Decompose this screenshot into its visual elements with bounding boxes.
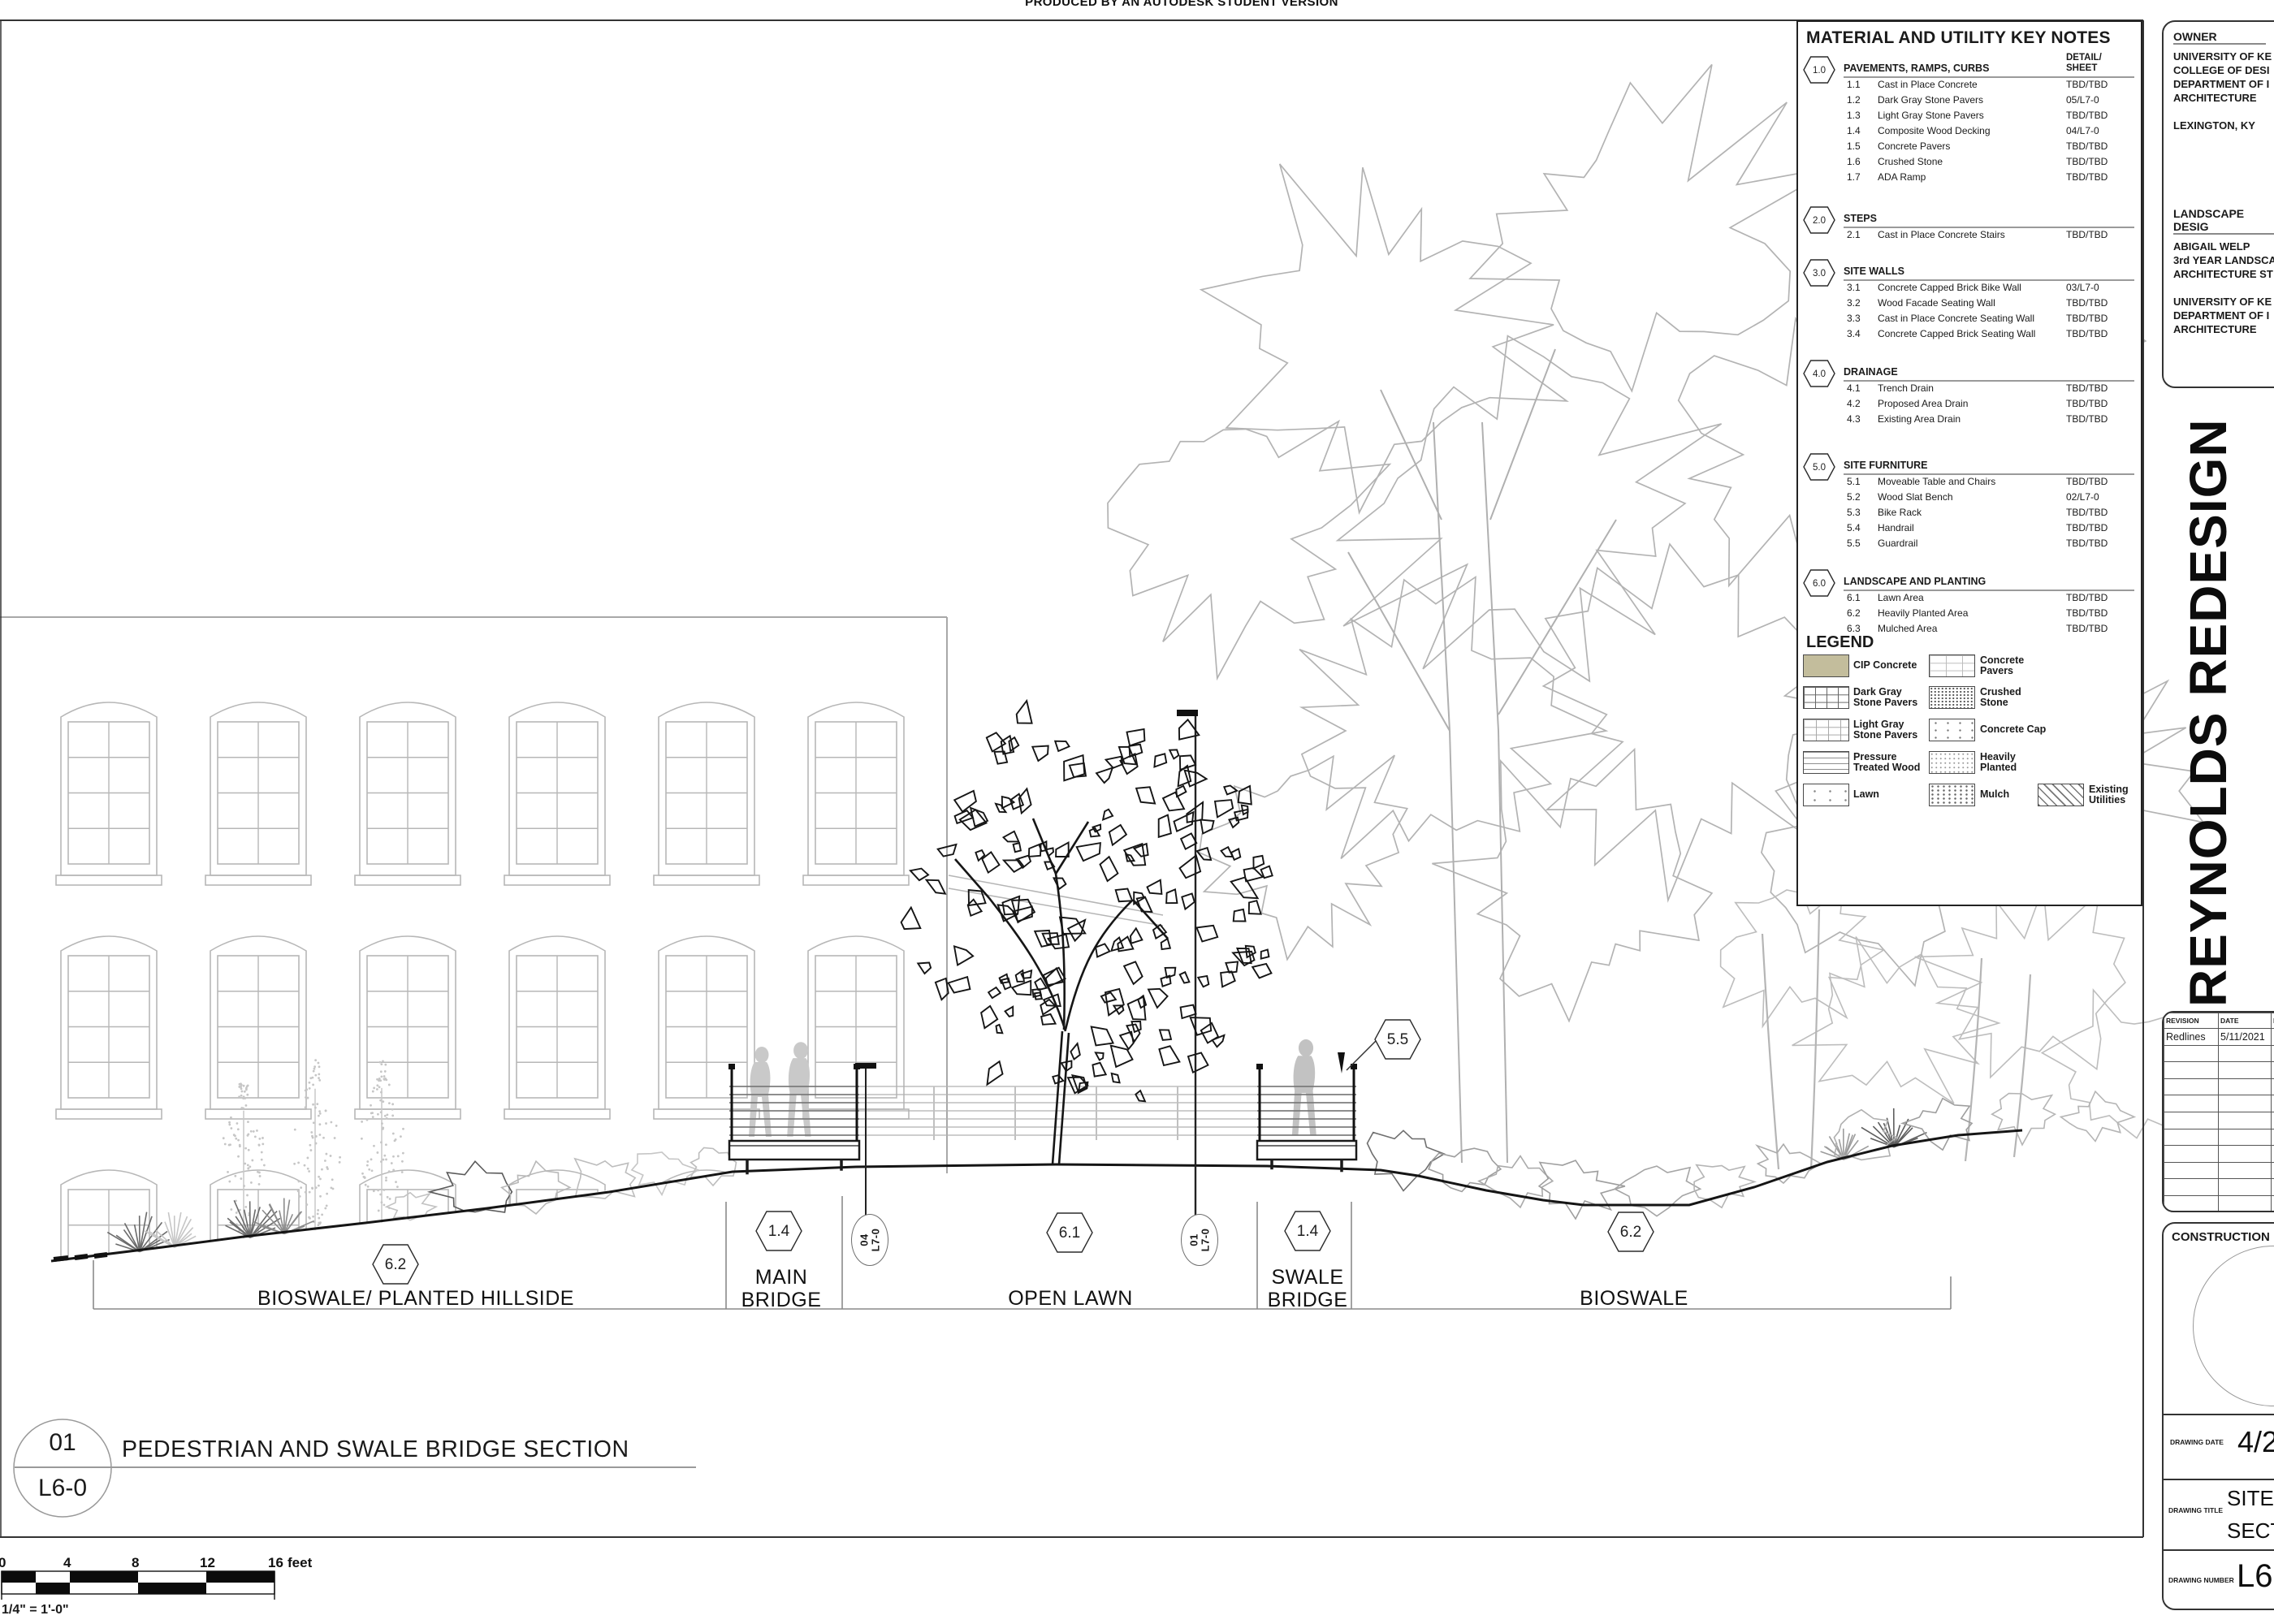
zone-label-line: BIOSWALE <box>1580 1288 1688 1311</box>
key-note-number: 2.1 <box>1847 227 1878 243</box>
revision-empty-cell <box>2272 1146 2274 1163</box>
revision-empty-cell <box>2164 1146 2219 1163</box>
svg-text:1.4: 1.4 <box>768 1223 790 1240</box>
drawing-sheet: PRODUCED BY AN AUTODESK STUDENT VERSION … <box>0 0 2274 1624</box>
drawing-title-value: SITE SECT <box>2227 1482 2274 1547</box>
key-note-detail: TBD/TBD <box>2066 520 2108 536</box>
key-note-row: 5.2Wood Slat Bench02/L7-0 <box>1798 490 2141 505</box>
key-note-label: Wood Slat Bench <box>1878 491 1953 503</box>
section-name: DRAINAGE <box>1844 366 1898 378</box>
revision-table: REVISIONDATEDESRedlines5/11/2021Ra <box>2162 1011 2274 1212</box>
key-note-row: 1.5Concrete PaversTBD/TBD <box>1798 139 2141 154</box>
viewport-sheet: L6-0 <box>12 1475 113 1502</box>
revision-empty-cell <box>2219 1146 2272 1163</box>
key-note-detail: TBD/TBD <box>2066 621 2108 637</box>
key-note-label: Dark Gray Stone Pavers <box>1878 94 1983 106</box>
zone-label-line: BRIDGE <box>741 1289 822 1312</box>
key-notes-section: 4.0DRAINAGE4.1Trench DrainTBD/TBD4.2Prop… <box>1798 363 2141 427</box>
revision-empty-cell <box>2164 1045 2219 1062</box>
svg-text:6.0: 6.0 <box>1813 579 1826 589</box>
detail-callout-sheet: L7-0 <box>1200 1229 1211 1252</box>
keynote-marker-hexagon: 1.4 <box>755 1211 802 1251</box>
key-note-row: 1.2Dark Gray Stone Pavers05/L7-0 <box>1798 93 2141 108</box>
key-notes-section-header: 4.0DRAINAGE <box>1798 363 2141 381</box>
viewport-number: 01 <box>12 1429 113 1457</box>
project-title-vertical: REYNOLDS REDESIGN <box>2178 438 2243 1007</box>
key-note-detail: TBD/TBD <box>2066 474 2108 490</box>
drawing-date-value: 4/2 <box>2237 1425 2274 1459</box>
keynote-marker-hexagon: 5.5 <box>1374 1019 1421 1060</box>
revision-cell: Ra <box>2272 1029 2274 1046</box>
key-notes-section: 3.0SITE WALLS3.1Concrete Capped Brick Bi… <box>1798 262 2141 342</box>
key-note-label: Cast in Place Concrete Stairs <box>1878 229 2005 240</box>
key-notes-section-header: 5.0SITE FURNITURE <box>1798 456 2141 474</box>
key-note-row: 4.3Existing Area DrainTBD/TBD <box>1798 412 2141 427</box>
revision-empty-cell <box>2219 1095 2272 1112</box>
key-note-row: 1.6Crushed StoneTBD/TBD <box>1798 154 2141 170</box>
svg-text:12: 12 <box>200 1555 215 1570</box>
revision-empty-cell <box>2219 1129 2272 1146</box>
key-note-detail: TBD/TBD <box>2066 170 2108 185</box>
designer-line: ABIGAIL WELP <box>2173 240 2274 253</box>
key-note-row: 3.4Concrete Capped Brick Seating WallTBD… <box>1798 326 2141 342</box>
key-note-detail: TBD/TBD <box>2066 296 2108 311</box>
key-note-detail: 02/L7-0 <box>2066 490 2099 505</box>
key-note-label: Handrail <box>1878 522 1914 533</box>
revision-empty-cell <box>2272 1112 2274 1129</box>
legend-label: Pressure Treated Wood <box>1853 750 1925 775</box>
key-note-label: Concrete Pavers <box>1878 140 1950 152</box>
key-note-number: 5.2 <box>1847 490 1878 505</box>
key-notes-section: 1.0PAVEMENTS, RAMPS, CURBS1.1Cast in Pla… <box>1798 59 2141 185</box>
svg-text:6.2: 6.2 <box>1620 1224 1641 1241</box>
revision-header-cell: DES <box>2272 1013 2274 1029</box>
revision-empty-row <box>2164 1195 2274 1212</box>
key-note-row: 6.2Heavily Planted AreaTBD/TBD <box>1798 606 2141 621</box>
revision-header-cell: REVISION <box>2164 1013 2219 1029</box>
key-notes-panel: MATERIAL AND UTILITY KEY NOTES DETAIL/ S… <box>1796 20 2142 906</box>
revision-empty-cell <box>2272 1129 2274 1146</box>
owner-line: LEXINGTON, KY <box>2173 119 2274 132</box>
revision-empty-cell <box>2164 1179 2219 1196</box>
legend-label: Light Gray Stone Pavers <box>1853 718 1925 742</box>
detail-callout-text: 04L7-0 <box>858 1229 881 1252</box>
revision-empty-cell <box>2272 1045 2274 1062</box>
legend-swatch-concrete-cap <box>1929 719 1975 741</box>
detail-callout-number: 01 <box>1188 1229 1200 1252</box>
key-note-detail: TBD/TBD <box>2066 505 2108 520</box>
revision-empty-cell <box>2272 1095 2274 1112</box>
revision-empty-cell <box>2164 1112 2219 1129</box>
scale-note: 1/4" = 1'-0" <box>2 1603 69 1618</box>
keynote-marker: 1.4 <box>1284 1211 1331 1251</box>
key-note-detail: TBD/TBD <box>2066 590 2108 606</box>
key-note-detail: TBD/TBD <box>2066 326 2108 342</box>
key-note-label: Mulched Area <box>1878 623 1937 634</box>
revision-empty-row <box>2164 1062 2274 1079</box>
keynote-marker-hexagon: 6.2 <box>372 1244 419 1285</box>
legend-label: Dark Gray Stone Pavers <box>1853 685 1925 710</box>
revision-empty-cell <box>2272 1179 2274 1196</box>
key-note-number: 1.7 <box>1847 170 1878 185</box>
revision-empty-cell <box>2219 1078 2272 1095</box>
legend-swatch-lawn <box>1803 784 1849 806</box>
drawing-number-value: L6 <box>2237 1558 2273 1595</box>
revision-empty-row <box>2164 1129 2274 1146</box>
detail-callout: 04L7-0 <box>851 1214 888 1266</box>
key-note-number: 1.6 <box>1847 154 1878 170</box>
key-note-detail: TBD/TBD <box>2066 108 2108 123</box>
key-note-number: 1.5 <box>1847 139 1878 154</box>
key-note-label: ADA Ramp <box>1878 171 1926 183</box>
designer-line: ARCHITECTURE <box>2173 322 2274 336</box>
revision-cell: Redlines <box>2164 1029 2219 1046</box>
revision-empty-cell <box>2272 1162 2274 1179</box>
detail-callout-text: 01L7-0 <box>1188 1229 1211 1252</box>
legend-label: Concrete Cap <box>1980 718 2051 742</box>
key-note-row: 3.3Cast in Place Concrete Seating WallTB… <box>1798 311 2141 326</box>
key-note-row: 3.2Wood Facade Seating WallTBD/TBD <box>1798 296 2141 311</box>
key-note-row: 2.1Cast in Place Concrete StairsTBD/TBD <box>1798 227 2141 243</box>
key-notes-section-header: 2.0STEPS <box>1798 209 2141 227</box>
key-note-label: Moveable Table and Chairs <box>1878 476 1995 487</box>
graphic-scale-bar: 0481216feet <box>0 1549 349 1606</box>
key-note-detail: TBD/TBD <box>2066 396 2108 412</box>
key-note-number: 3.2 <box>1847 296 1878 311</box>
key-note-row: 4.1Trench DrainTBD/TBD <box>1798 381 2141 396</box>
svg-text:4.0: 4.0 <box>1813 369 1826 379</box>
keynote-marker: 6.2 <box>1607 1212 1654 1252</box>
key-note-detail: TBD/TBD <box>2066 412 2108 427</box>
svg-text:feet: feet <box>287 1555 313 1570</box>
keynote-marker: 6.1 <box>1046 1212 1093 1253</box>
key-note-number: 1.3 <box>1847 108 1878 123</box>
designer-line: 3rd YEAR LANDSCA <box>2173 253 2274 267</box>
keynote-marker: 5.5 <box>1374 1019 1421 1060</box>
key-note-row: 3.1Concrete Capped Brick Bike Wall03/L7-… <box>1798 280 2141 296</box>
svg-text:8: 8 <box>132 1555 139 1570</box>
svg-text:1.0: 1.0 <box>1813 66 1826 76</box>
key-note-label: Bike Rack <box>1878 507 1922 518</box>
key-note-number: 5.4 <box>1847 520 1878 536</box>
key-note-detail: TBD/TBD <box>2066 139 2108 154</box>
owner-line: UNIVERSITY OF KE <box>2173 50 2274 63</box>
key-note-label: Proposed Area Drain <box>1878 398 1968 409</box>
legend-swatch-heavily-planted <box>1929 751 1975 774</box>
owner-block: OWNER UNIVERSITY OF KECOLLEGE OF DESIDEP… <box>2162 20 2274 388</box>
key-note-row: 1.3Light Gray Stone PaversTBD/TBD <box>1798 108 2141 123</box>
key-note-number: 5.1 <box>1847 474 1878 490</box>
revision-empty-row <box>2164 1112 2274 1129</box>
key-note-number: 3.1 <box>1847 280 1878 296</box>
key-note-number: 1.2 <box>1847 93 1878 108</box>
designer-lines: ABIGAIL WELP3rd YEAR LANDSCAARCHITECTURE… <box>2173 240 2274 336</box>
zone-label-line: OPEN LAWN <box>1008 1288 1133 1311</box>
key-note-detail: TBD/TBD <box>2066 77 2108 93</box>
section-name: SITE FURNITURE <box>1844 460 1927 471</box>
key-note-row: 1.7ADA RampTBD/TBD <box>1798 170 2141 185</box>
key-note-row: 4.2Proposed Area DrainTBD/TBD <box>1798 396 2141 412</box>
zone-label: MAINBRIDGE <box>741 1267 822 1311</box>
key-note-row: 1.1Cast in Place ConcreteTBD/TBD <box>1798 77 2141 93</box>
key-note-label: Existing Area Drain <box>1878 413 1961 425</box>
revision-header-cell: DATE <box>2219 1013 2272 1029</box>
drawing-number-label: DRAWING NUMBER <box>2168 1576 2234 1584</box>
key-note-number: 5.3 <box>1847 505 1878 520</box>
revision-empty-cell <box>2219 1179 2272 1196</box>
revision-empty-row <box>2164 1179 2274 1196</box>
key-notes-section: 5.0SITE FURNITURE5.1Moveable Table and C… <box>1798 456 2141 551</box>
revision-empty-cell <box>2219 1045 2272 1062</box>
owner-header: OWNER <box>2173 30 2266 45</box>
key-note-row: 6.1Lawn AreaTBD/TBD <box>1798 590 2141 606</box>
revision-empty-cell <box>2164 1095 2219 1112</box>
svg-text:4: 4 <box>63 1555 71 1570</box>
viewport-title: PEDESTRIAN AND SWALE BRIDGE SECTION <box>122 1436 629 1463</box>
legend-swatch-existing-utilities <box>2038 784 2084 806</box>
zone-label: SWALEBRIDGE <box>1268 1267 1348 1311</box>
key-notes-section-header: 3.0SITE WALLS <box>1798 262 2141 280</box>
revision-empty-cell <box>2164 1078 2219 1095</box>
key-note-label: Concrete Capped Brick Seating Wall <box>1878 328 2035 339</box>
key-note-detail: 03/L7-0 <box>2066 280 2099 296</box>
drawing-title-label: DRAWING TITLE <box>2168 1506 2223 1514</box>
key-notes-sections: 1.0PAVEMENTS, RAMPS, CURBS1.1Cast in Pla… <box>1798 59 2141 637</box>
revision-empty-row <box>2164 1162 2274 1179</box>
key-note-number: 1.1 <box>1847 77 1878 93</box>
legend-label: Concrete Pavers <box>1980 654 2051 678</box>
key-note-label: Lawn Area <box>1878 592 1924 603</box>
key-note-row: 1.4Composite Wood Decking04/L7-0 <box>1798 123 2141 139</box>
owner-line: DEPARTMENT OF I <box>2173 77 2274 91</box>
detail-callout: 01L7-0 <box>1181 1214 1218 1266</box>
key-note-label: Concrete Capped Brick Bike Wall <box>1878 282 2021 293</box>
key-note-detail: TBD/TBD <box>2066 536 2108 551</box>
key-note-number: 6.1 <box>1847 590 1878 606</box>
revision-empty-row <box>2164 1078 2274 1095</box>
key-note-label: Heavily Planted Area <box>1878 607 1968 619</box>
key-note-label: Guardrail <box>1878 538 1917 549</box>
revision-empty-cell <box>2164 1195 2219 1212</box>
zone-label-line: BRIDGE <box>1268 1289 1348 1312</box>
detail-callout-number: 04 <box>858 1229 870 1252</box>
legend-swatch-concrete-pavers <box>1929 654 1975 677</box>
viewport-title-rule <box>15 1466 696 1468</box>
revision-empty-cell <box>2272 1078 2274 1095</box>
owner-lines: UNIVERSITY OF KECOLLEGE OF DESIDEPARTMEN… <box>2173 50 2274 132</box>
legend-swatch-wood <box>1803 751 1849 774</box>
key-note-label: Wood Facade Seating Wall <box>1878 297 1995 309</box>
revision-empty-cell <box>2272 1062 2274 1079</box>
legend-swatch-cip <box>1803 654 1849 677</box>
key-note-detail: TBD/TBD <box>2066 154 2108 170</box>
legend-label: Existing Utilities <box>2089 783 2142 807</box>
key-note-number: 6.2 <box>1847 606 1878 621</box>
key-notes-title: MATERIAL AND UTILITY KEY NOTES <box>1806 28 2141 48</box>
key-note-number: 3.3 <box>1847 311 1878 326</box>
zone-label-line: BIOSWALE/ PLANTED HILLSIDE <box>257 1288 574 1311</box>
key-note-detail: TBD/TBD <box>2066 311 2108 326</box>
revision-cell: 5/11/2021 <box>2219 1029 2272 1046</box>
zone-label-line: MAIN <box>741 1267 822 1289</box>
revision-empty-row <box>2164 1095 2274 1112</box>
detail-callout-sheet: L7-0 <box>870 1229 881 1252</box>
section-name: STEPS <box>1844 213 1877 224</box>
zone-label: OPEN LAWN <box>1008 1288 1133 1311</box>
key-note-number: 4.3 <box>1847 412 1878 427</box>
legend-label: Lawn <box>1853 783 1925 807</box>
legend-label: Crushed Stone <box>1980 685 2051 710</box>
key-note-detail: 04/L7-0 <box>2066 123 2099 139</box>
designer-header: LANDSCAPE DESIG <box>2173 207 2274 235</box>
revision-empty-cell <box>2219 1195 2272 1212</box>
key-note-detail: TBD/TBD <box>2066 606 2108 621</box>
revision-empty-cell <box>2219 1112 2272 1129</box>
legend-label: Heavily Planted <box>1980 750 2051 775</box>
section-name: PAVEMENTS, RAMPS, CURBS <box>1844 63 1989 74</box>
key-note-number: 3.4 <box>1847 326 1878 342</box>
key-note-row: 5.3Bike RackTBD/TBD <box>1798 505 2141 520</box>
keynote-marker: 1.4 <box>755 1211 802 1251</box>
keynote-marker-hexagon: 1.4 <box>1284 1211 1331 1251</box>
key-note-detail: 05/L7-0 <box>2066 93 2099 108</box>
revision-empty-cell <box>2164 1062 2219 1079</box>
owner-line <box>2173 105 2274 119</box>
zone-label: BIOSWALE/ PLANTED HILLSIDE <box>257 1288 574 1311</box>
legend-swatch-dark-pavers <box>1803 686 1849 709</box>
key-note-detail: TBD/TBD <box>2066 381 2108 396</box>
revision-empty-cell <box>2219 1162 2272 1179</box>
key-note-label: Composite Wood Decking <box>1878 125 1991 136</box>
key-note-label: Crushed Stone <box>1878 156 1943 167</box>
key-note-number: 5.5 <box>1847 536 1878 551</box>
key-notes-section-header: 6.0LANDSCAPE AND PLANTING <box>1798 572 2141 590</box>
legend-swatch-mulch <box>1929 784 1975 806</box>
titleblock-lower: CONSTRUCTION D DRAWING DATE 4/2 DRAWING … <box>2162 1222 2274 1610</box>
construction-header: CONSTRUCTION D <box>2172 1230 2274 1244</box>
legend-swatch-crushed-stone <box>1929 686 1975 709</box>
key-note-number: 4.1 <box>1847 381 1878 396</box>
designer-line: UNIVERSITY OF KE <box>2173 295 2274 309</box>
keynote-marker-hexagon: 6.2 <box>1607 1212 1654 1252</box>
legend-label: CIP Concrete <box>1853 654 1925 678</box>
revision-empty-row <box>2164 1146 2274 1163</box>
section-name: LANDSCAPE AND PLANTING <box>1844 576 1986 587</box>
key-note-number: 1.4 <box>1847 123 1878 139</box>
key-notes-section-header: 1.0PAVEMENTS, RAMPS, CURBS <box>1798 59 2141 77</box>
zone-label: BIOSWALE <box>1580 1288 1688 1311</box>
svg-text:3.0: 3.0 <box>1813 269 1826 279</box>
svg-text:16: 16 <box>268 1555 283 1570</box>
designer-line <box>2173 281 2274 295</box>
revision-empty-row <box>2164 1045 2274 1062</box>
revision-empty-cell <box>2219 1062 2272 1079</box>
owner-line: COLLEGE OF DESI <box>2173 63 2274 77</box>
designer-line: DEPARTMENT OF I <box>2173 309 2274 322</box>
key-note-label: Cast in Place Concrete <box>1878 79 1978 90</box>
key-notes-section: 6.0LANDSCAPE AND PLANTING6.1Lawn AreaTBD… <box>1798 572 2141 637</box>
key-note-detail: TBD/TBD <box>2066 227 2108 243</box>
revision-empty-cell <box>2164 1129 2219 1146</box>
svg-text:6.2: 6.2 <box>385 1256 406 1273</box>
designer-line: ARCHITECTURE ST <box>2173 267 2274 281</box>
legend-title: LEGEND <box>1806 633 1874 652</box>
revision-empty-cell <box>2272 1195 2274 1212</box>
key-note-row: 5.4HandrailTBD/TBD <box>1798 520 2141 536</box>
key-note-number: 4.2 <box>1847 396 1878 412</box>
revision-header-row: REVISIONDATEDES <box>2164 1013 2274 1029</box>
key-note-label: Light Gray Stone Pavers <box>1878 110 1984 121</box>
svg-text:0: 0 <box>0 1555 6 1570</box>
zone-label-line: SWALE <box>1268 1267 1348 1289</box>
legend-swatch-light-pavers <box>1803 719 1849 741</box>
key-note-row: 5.5GuardrailTBD/TBD <box>1798 536 2141 551</box>
svg-text:6.1: 6.1 <box>1059 1224 1080 1242</box>
section-name: SITE WALLS <box>1844 266 1904 277</box>
svg-text:2.0: 2.0 <box>1813 216 1826 226</box>
drawing-date-label: DRAWING DATE <box>2170 1438 2224 1446</box>
keynote-marker-hexagon: 6.1 <box>1046 1212 1093 1253</box>
key-note-label: Trench Drain <box>1878 382 1934 394</box>
svg-text:1.4: 1.4 <box>1297 1223 1319 1240</box>
svg-text:5.0: 5.0 <box>1813 463 1826 473</box>
keynote-marker: 6.2 <box>372 1244 419 1285</box>
key-note-row: 5.1Moveable Table and ChairsTBD/TBD <box>1798 474 2141 490</box>
owner-line: ARCHITECTURE <box>2173 91 2274 105</box>
svg-text:5.5: 5.5 <box>1387 1031 1408 1048</box>
stamp-circle <box>2193 1246 2274 1406</box>
key-notes-section: 2.0STEPS2.1Cast in Place Concrete Stairs… <box>1798 209 2141 243</box>
key-note-label: Cast in Place Concrete Seating Wall <box>1878 313 2034 324</box>
revision-empty-cell <box>2164 1162 2219 1179</box>
revision-row: Redlines5/11/2021Ra <box>2164 1029 2274 1046</box>
